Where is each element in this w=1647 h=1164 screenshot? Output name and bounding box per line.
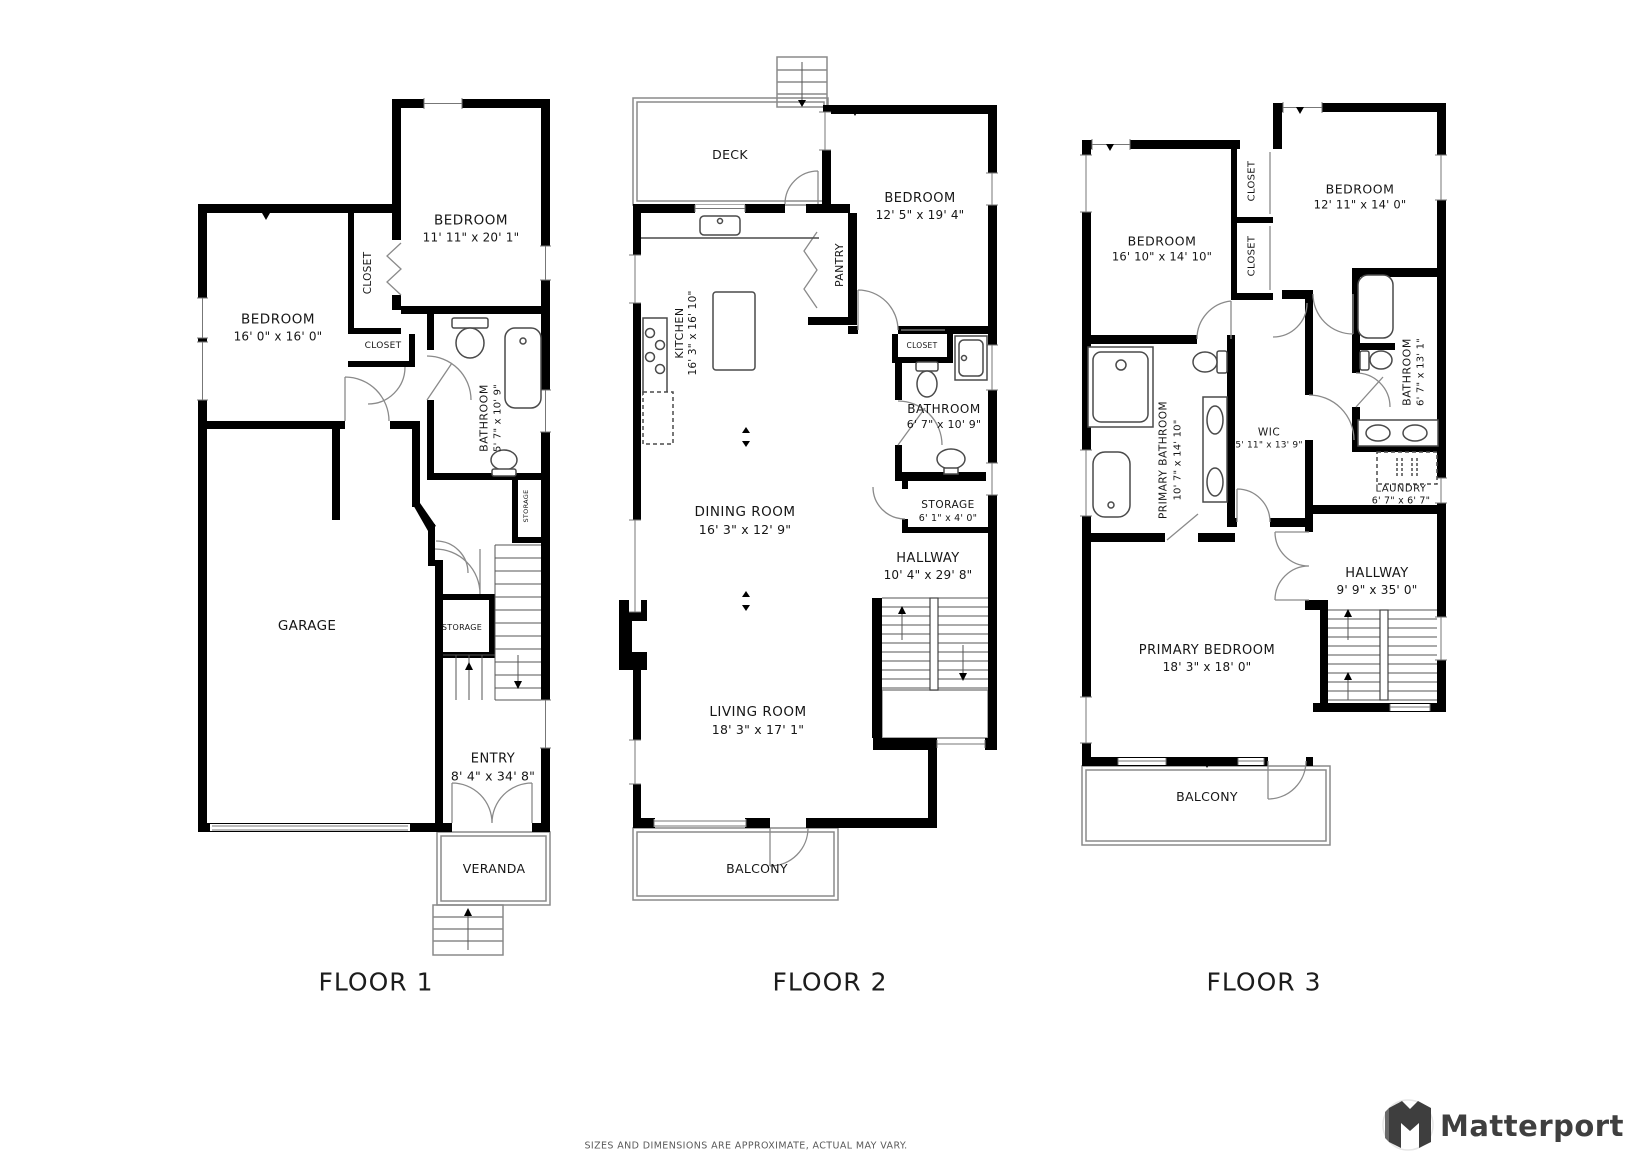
matterport-floorplan: BEDROOM 11' 11" x 20' 1" BEDROOM 16' 0" … xyxy=(0,0,1647,1164)
room-label-f3-primary-bathroom: PRIMARY BATHROOM 10' 7" x 14' 10" xyxy=(1158,401,1185,519)
room-label-f3-bathroom: BATHROOM 6' 7" x 13' 1" xyxy=(1400,338,1427,406)
brand-wordmark: Matterport xyxy=(1440,1109,1624,1143)
room-label-f3-balcony: BALCONY xyxy=(1176,789,1238,805)
room-label-f2-closet: CLOSET xyxy=(907,341,938,351)
room-label-f3-bedroom-ne: BEDROOM 12' 11" x 14' 0" xyxy=(1314,181,1407,212)
room-label-f1-garage: GARAGE xyxy=(278,618,336,636)
room-label-f1-bedroom-ne: BEDROOM 11' 11" x 20' 1" xyxy=(423,212,520,245)
room-label-f1-entry: ENTRY 8' 4" x 34' 8" xyxy=(451,751,535,784)
room-label-f1-bedroom-w: BEDROOM 16' 0" x 16' 0" xyxy=(234,311,323,344)
room-label-f2-kitchen: KITCHEN 16' 3" x 16' 10" xyxy=(673,291,701,376)
room-label-f2-dining-room: DINING ROOM 16' 3" x 12' 9" xyxy=(694,504,795,538)
room-label-f3-bedroom-w: BEDROOM 16' 10" x 14' 10" xyxy=(1112,233,1212,264)
floor3-geometry xyxy=(1080,102,1447,845)
room-label-f3-laundry: LAUNDRY 6' 7" x 6' 7" xyxy=(1372,482,1430,507)
room-label-f3-primary-bedroom: PRIMARY BEDROOM 18' 3" x 18' 0" xyxy=(1139,643,1275,675)
room-label-f1-storage-small: STORAGE xyxy=(522,489,530,522)
room-label-f2-storage: STORAGE 6' 1" x 4' 0" xyxy=(919,499,977,525)
room-label-f2-pantry: PANTRY xyxy=(833,243,847,287)
room-label-f1-closet-1: CLOSET xyxy=(362,252,376,295)
room-label-f2-bathroom: BATHROOM 6' 7" x 10' 9" xyxy=(907,402,981,432)
room-label-f2-hallway: HALLWAY 10' 4" x 29' 8" xyxy=(884,551,973,583)
room-label-f3-hallway: HALLWAY 9' 9" x 35' 0" xyxy=(1337,566,1418,598)
room-label-f3-closet-2: CLOSET xyxy=(1246,236,1259,277)
room-label-f2-living-room: LIVING ROOM 18' 3" x 17' 1" xyxy=(709,704,806,738)
room-label-f2-balcony: BALCONY xyxy=(726,861,788,877)
matterport-m-cube-icon xyxy=(1381,1098,1435,1152)
room-label-f3-wic: WIC 5' 11" x 13' 9" xyxy=(1235,426,1302,451)
room-label-f2-deck: DECK xyxy=(712,147,748,163)
floor3-title: FLOOR 3 xyxy=(1207,968,1322,997)
floor2-title: FLOOR 2 xyxy=(773,968,888,997)
room-label-f1-veranda: VERANDA xyxy=(463,861,526,877)
room-label-f1-bathroom: BATHROOM 5' 7" x 10' 9" xyxy=(477,384,504,452)
disclaimer-text: SIZES AND DIMENSIONS ARE APPROXIMATE, AC… xyxy=(584,1141,907,1152)
room-label-f1-storage-mid: STORAGE xyxy=(442,623,482,633)
room-label-f3-closet-1: CLOSET xyxy=(1246,161,1259,202)
floor1-title: FLOOR 1 xyxy=(319,968,434,997)
floor2-geometry xyxy=(619,57,998,900)
room-label-f2-bedroom: BEDROOM 12' 5" x 19' 4" xyxy=(876,191,965,223)
room-label-f1-closet-2: CLOSET xyxy=(365,341,402,353)
